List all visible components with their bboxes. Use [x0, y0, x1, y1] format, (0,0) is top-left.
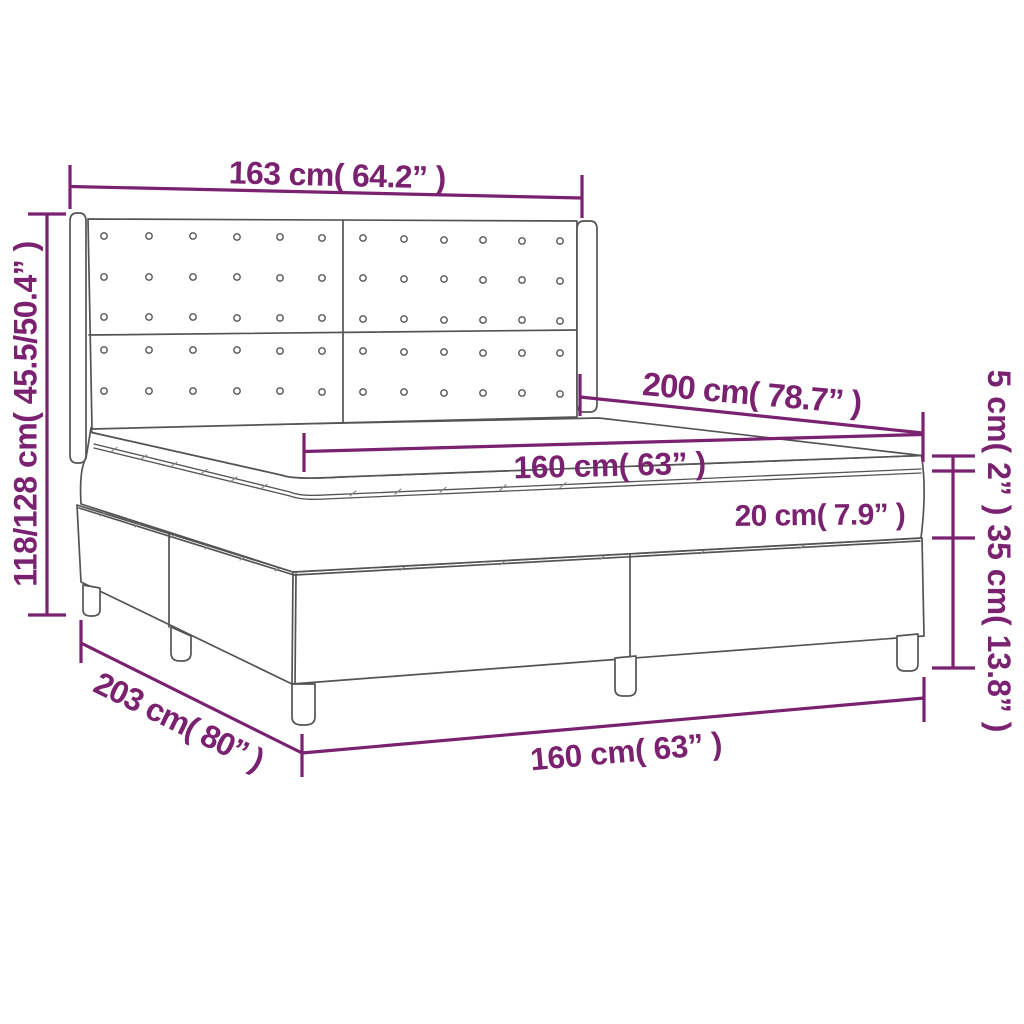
svg-text:160 cm( 63” ): 160 cm( 63” ): [513, 445, 706, 486]
svg-text:5 cm( 2” ) 35 cm( 13.8” ): 5 cm( 2” ) 35 cm( 13.8” ): [981, 370, 1017, 733]
svg-text:163 cm( 64.2” ): 163 cm( 64.2” ): [228, 154, 446, 195]
svg-text:118/128 cm( 45.5/50.4” ): 118/128 cm( 45.5/50.4” ): [8, 241, 44, 587]
svg-text:20 cm( 7.9” ): 20 cm( 7.9” ): [734, 498, 905, 533]
